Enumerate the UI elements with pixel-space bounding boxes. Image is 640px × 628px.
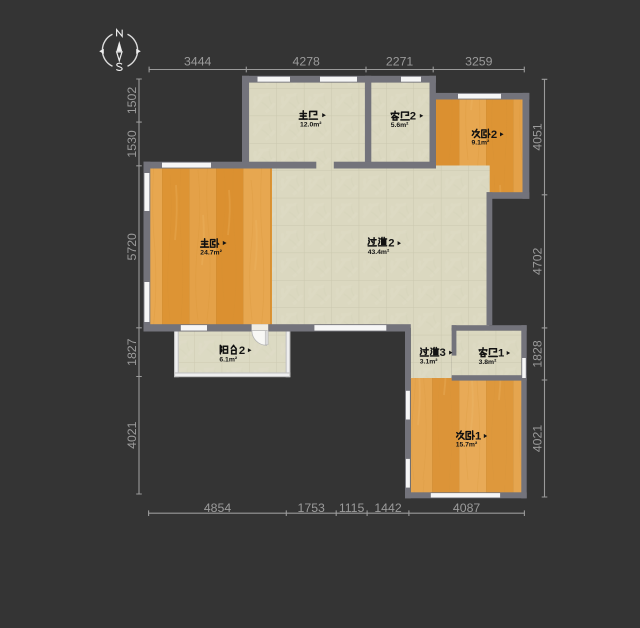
- svg-text:5720: 5720: [125, 233, 139, 261]
- svg-text:24.7m²: 24.7m²: [200, 249, 222, 256]
- svg-text:4087: 4087: [453, 501, 481, 515]
- svg-text:4278: 4278: [293, 55, 321, 69]
- svg-text:1502: 1502: [125, 87, 139, 115]
- svg-text:3444: 3444: [184, 55, 212, 69]
- svg-text:1442: 1442: [374, 501, 402, 515]
- svg-text:43.4m²: 43.4m²: [368, 249, 390, 256]
- svg-text:2: 2: [239, 345, 245, 357]
- svg-text:2: 2: [491, 129, 497, 141]
- svg-text:3.1m²: 3.1m²: [420, 358, 438, 365]
- svg-text:1530: 1530: [125, 130, 139, 158]
- svg-text:1: 1: [498, 348, 504, 360]
- svg-text:3: 3: [440, 347, 446, 359]
- svg-text:2: 2: [388, 237, 394, 249]
- svg-text:1115: 1115: [339, 501, 365, 515]
- svg-text:4854: 4854: [204, 501, 232, 515]
- svg-text:4702: 4702: [531, 247, 545, 275]
- svg-text:1827: 1827: [125, 338, 139, 366]
- svg-text:9.1m²: 9.1m²: [472, 139, 490, 146]
- svg-text:1753: 1753: [298, 501, 326, 515]
- svg-text:5.6m²: 5.6m²: [391, 122, 409, 129]
- svg-text:12.0m²: 12.0m²: [300, 121, 322, 128]
- svg-text:2271: 2271: [386, 55, 414, 69]
- svg-text:1828: 1828: [531, 340, 545, 368]
- svg-text:3259: 3259: [465, 55, 493, 69]
- svg-text:3.8m²: 3.8m²: [479, 359, 497, 366]
- svg-text:6.1m²: 6.1m²: [219, 356, 237, 363]
- svg-text:2: 2: [410, 110, 416, 122]
- svg-text:4021: 4021: [531, 425, 545, 453]
- svg-text:15.7m²: 15.7m²: [456, 441, 478, 448]
- svg-text:4021: 4021: [125, 421, 139, 449]
- svg-text:4051: 4051: [531, 123, 545, 151]
